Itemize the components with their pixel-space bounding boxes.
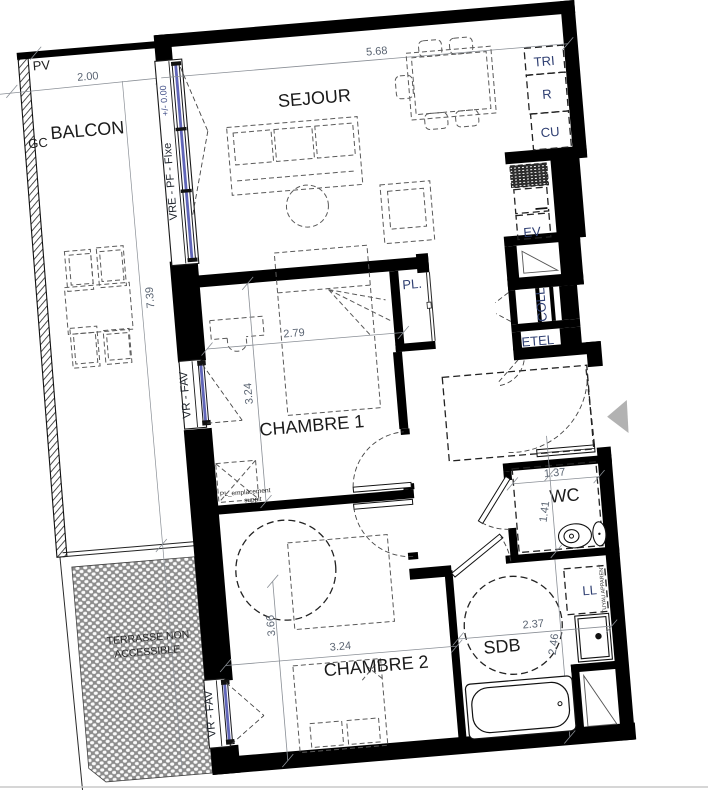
svg-text:3.66: 3.66 (265, 614, 279, 636)
svg-text:3.24: 3.24 (329, 640, 351, 654)
svg-text:5.68: 5.68 (366, 45, 388, 59)
svg-text:SEJOUR: SEJOUR (277, 85, 351, 111)
svg-text:2.46: 2.46 (547, 633, 562, 656)
svg-text:SDB: SDB (483, 635, 522, 658)
svg-text:LL: LL (582, 582, 598, 598)
svg-text:PL.: PL. (402, 276, 423, 293)
svg-text:2.00: 2.00 (77, 70, 99, 84)
svg-text:PV: PV (32, 57, 51, 73)
svg-text:CHAMBRE 1: CHAMBRE 1 (259, 411, 365, 440)
svg-text:TUYAU APPARENT: TUYAU APPARENT (598, 563, 608, 613)
svg-text:3.24: 3.24 (242, 382, 256, 404)
svg-text:TRI: TRI (533, 53, 555, 70)
svg-text:EV: EV (523, 224, 542, 240)
svg-text:GC: GC (28, 135, 49, 152)
svg-text:supplt: supplt (244, 496, 262, 504)
svg-text:R: R (542, 86, 553, 102)
svg-text:1.41: 1.41 (538, 500, 553, 523)
svg-text:2.79: 2.79 (283, 327, 305, 341)
svg-text:7.39: 7.39 (144, 286, 158, 308)
svg-text:CU: CU (540, 124, 560, 141)
svg-text:2.37: 2.37 (522, 618, 544, 632)
svg-text:WC: WC (549, 484, 581, 506)
svg-text:COLL: COLL (532, 287, 550, 322)
svg-text:BALCON: BALCON (50, 117, 125, 143)
